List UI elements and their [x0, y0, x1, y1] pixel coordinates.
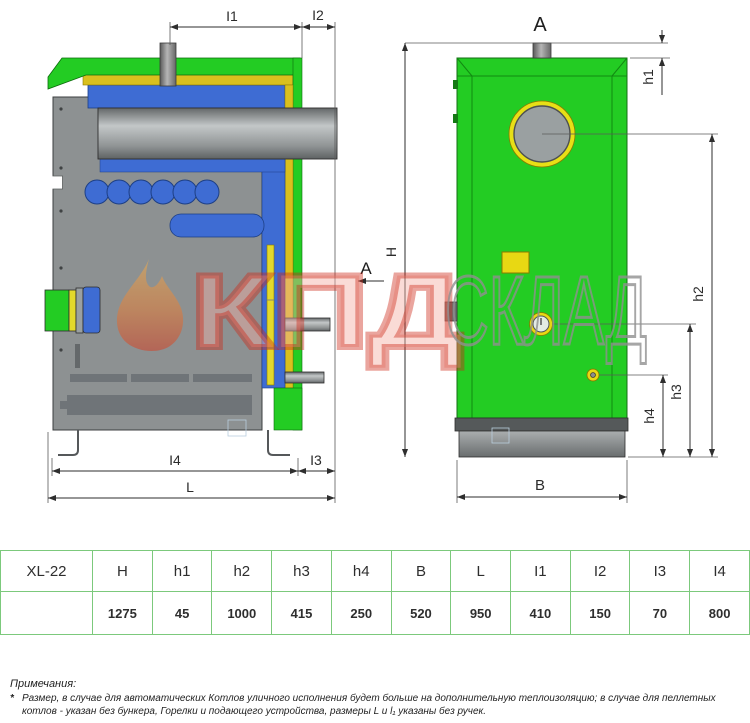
dim-label-h1: h1 — [640, 69, 656, 85]
base-skirt — [459, 431, 625, 457]
technical-drawing: I1 I2 I4 I3 L A — [0, 0, 750, 545]
dim-label-l: L — [186, 479, 194, 495]
note-text: Размер, в случае для автоматических Котл… — [22, 693, 732, 718]
dim-label-h4: h4 — [641, 408, 657, 424]
hinge-upper — [453, 80, 458, 89]
dim-label-i4: I4 — [169, 452, 181, 468]
notes-section: Примечания: * Размер, в случае для автом… — [10, 678, 732, 718]
table-model-cell: XL-22 — [1, 551, 93, 592]
table-header-h2: h2 — [212, 551, 272, 592]
water-jacket-top — [88, 85, 285, 108]
rear-pipe-lower — [285, 372, 324, 383]
chimney-stub-back — [533, 43, 551, 58]
baffle-tongue — [170, 214, 264, 237]
loading-door — [45, 287, 100, 333]
table-value-h3: 415 — [272, 592, 332, 635]
table-value-l: 950 — [451, 592, 511, 635]
table-value-row: 1275 45 1000 415 250 520 950 410 150 70 … — [1, 592, 750, 635]
table-header-i2: I2 — [570, 551, 630, 592]
table-header-h4: h4 — [331, 551, 391, 592]
watermark-shop: СКЛАД — [445, 256, 647, 365]
table-value-h: 1275 — [93, 592, 153, 635]
wall-notch — [53, 176, 63, 189]
table-value-h1: 45 — [152, 592, 212, 635]
boiler-dimension-sheet: I1 I2 I4 I3 L A — [0, 0, 750, 723]
dim-label-b: B — [535, 477, 545, 494]
view-a-label: A — [533, 14, 547, 36]
table-value-i1: 410 — [511, 592, 571, 635]
table-header-b: B — [391, 551, 451, 592]
dim-label-i2: I2 — [312, 7, 324, 23]
table-cell-model-empty — [1, 592, 93, 635]
inner-bracket — [75, 344, 80, 368]
notes-title: Примечания: — [10, 678, 732, 690]
note-item: * Размер, в случае для автоматических Ко… — [10, 693, 732, 718]
hinge-lower — [453, 114, 458, 123]
chimney-stub-side — [160, 43, 176, 86]
leg-right — [268, 430, 290, 455]
drain-fitting — [591, 373, 596, 378]
flue-pipe — [98, 108, 337, 159]
dimension-table: XL-22 H h1 h2 h3 h4 B L I1 I2 I3 I4 1275… — [0, 550, 750, 635]
table-header-i3: I3 — [630, 551, 690, 592]
casing-bottom-right — [274, 388, 302, 430]
table-value-b: 520 — [391, 592, 451, 635]
table-header-h3: h3 — [272, 551, 332, 592]
dim-label-h3: h3 — [668, 384, 684, 400]
table-header-h1: h1 — [152, 551, 212, 592]
table-value-i2: 150 — [570, 592, 630, 635]
table-header-i1: I1 — [511, 551, 571, 592]
note-marker: * — [10, 693, 22, 718]
water-jacket-under-pipe — [100, 159, 285, 172]
dim-label-i1: I1 — [226, 8, 238, 24]
table-header-i4: I4 — [690, 551, 750, 592]
base-strip — [455, 418, 628, 431]
dim-label-i3: I3 — [310, 452, 322, 468]
table-value-h4: 250 — [331, 592, 391, 635]
leg-left — [58, 430, 78, 455]
table-header-row: XL-22 H h1 h2 h3 h4 B L I1 I2 I3 I4 — [1, 551, 750, 592]
watermark-brand: КПД — [191, 254, 463, 370]
table-value-i4: 800 — [690, 592, 750, 635]
table-value-i3: 70 — [630, 592, 690, 635]
table-header-l: L — [451, 551, 511, 592]
table-header-h: H — [93, 551, 153, 592]
table-value-h2: 1000 — [212, 592, 272, 635]
dim-label-h2: h2 — [690, 286, 706, 302]
watermark: КПД СКЛАД — [117, 254, 647, 370]
